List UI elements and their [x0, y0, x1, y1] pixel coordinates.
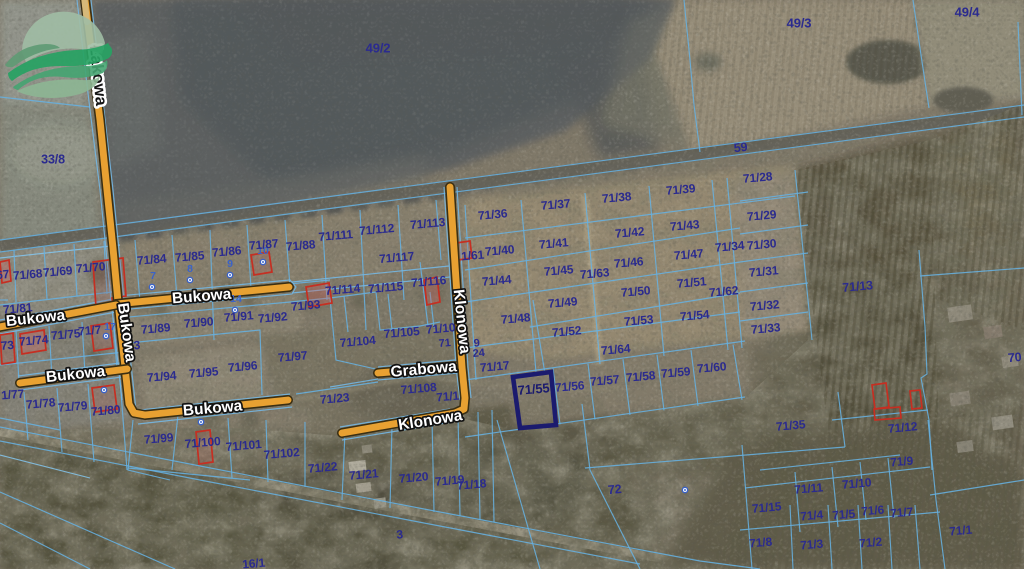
svg-text:71/64: 71/64 [600, 341, 631, 358]
svg-text:71/6: 71/6 [861, 503, 885, 519]
svg-text:71/17: 71/17 [479, 358, 510, 375]
svg-text:71/45: 71/45 [543, 262, 574, 279]
svg-text:71/4: 71/4 [800, 508, 824, 524]
svg-text:71/21: 71/21 [348, 466, 379, 483]
svg-text:71/15: 71/15 [751, 499, 782, 516]
svg-text:71/13: 71/13 [842, 278, 874, 295]
svg-text:49/4: 49/4 [955, 5, 981, 20]
svg-text:71/7: 71/7 [78, 323, 102, 339]
svg-text:71/68: 71/68 [12, 266, 43, 283]
svg-text:71/31: 71/31 [748, 263, 779, 280]
svg-text:71/95: 71/95 [188, 364, 219, 381]
svg-text:71/30: 71/30 [746, 236, 777, 253]
svg-text:71/70: 71/70 [75, 259, 106, 276]
svg-text:72: 72 [607, 482, 622, 497]
svg-text:71/5: 71/5 [832, 507, 856, 523]
svg-text:71/32: 71/32 [749, 297, 780, 314]
svg-text:71/48: 71/48 [500, 310, 531, 327]
svg-text:70: 70 [1007, 350, 1022, 365]
svg-text:71/7: 71/7 [890, 505, 914, 521]
svg-text:71/23: 71/23 [319, 390, 350, 407]
svg-text:71/53: 71/53 [623, 312, 654, 329]
svg-text:71/60: 71/60 [696, 359, 727, 376]
svg-text:71/94: 71/94 [146, 368, 177, 385]
svg-text:71/44: 71/44 [481, 272, 512, 289]
svg-text:24: 24 [472, 347, 486, 360]
svg-text:71/89: 71/89 [140, 320, 171, 337]
svg-text:71/38: 71/38 [601, 189, 632, 206]
svg-text:71/62: 71/62 [708, 283, 739, 300]
svg-text:71/29: 71/29 [746, 207, 777, 224]
svg-text:71/99: 71/99 [143, 430, 174, 447]
svg-text:71/58: 71/58 [625, 368, 656, 385]
svg-text:71/18: 71/18 [456, 476, 487, 493]
svg-text:71/33: 71/33 [750, 320, 781, 337]
svg-text:71/78: 71/78 [25, 395, 56, 412]
svg-text:71/43: 71/43 [669, 217, 700, 234]
svg-text:71/52: 71/52 [551, 323, 582, 340]
svg-text:71/10: 71/10 [425, 320, 456, 337]
svg-text:71/63: 71/63 [579, 265, 610, 282]
svg-text:71/80: 71/80 [90, 402, 121, 419]
svg-text:71/91: 71/91 [223, 308, 254, 325]
svg-text:71: 71 [438, 337, 451, 350]
svg-text:71/1: 71/1 [949, 523, 973, 539]
svg-text:71/55: 71/55 [517, 380, 550, 398]
svg-text:7: 7 [150, 270, 156, 282]
svg-text:71/87: 71/87 [248, 236, 279, 253]
svg-text:71/92: 71/92 [257, 309, 288, 326]
svg-text:1/61: 1/61 [461, 248, 485, 264]
svg-text:1/77: 1/77 [1, 387, 25, 403]
svg-text:71/22: 71/22 [307, 459, 338, 476]
svg-text:49/2: 49/2 [366, 41, 391, 56]
svg-text:71/20: 71/20 [398, 469, 429, 486]
svg-text:71/42: 71/42 [614, 224, 645, 241]
svg-text:71/12: 71/12 [887, 419, 918, 436]
svg-text:71/8: 71/8 [749, 535, 773, 551]
svg-text:71/69: 71/69 [42, 263, 73, 280]
svg-text:/73: /73 [0, 338, 15, 353]
svg-text:71/9: 71/9 [890, 454, 914, 470]
svg-text:71/93: 71/93 [290, 297, 321, 314]
svg-text:17: 17 [104, 321, 116, 333]
svg-text:71/85: 71/85 [174, 248, 205, 265]
svg-text:9: 9 [227, 258, 233, 270]
svg-text:71/37: 71/37 [540, 196, 571, 213]
svg-text:71/49: 71/49 [547, 294, 578, 311]
svg-text:71/47: 71/47 [673, 246, 704, 263]
svg-text:71/86: 71/86 [211, 243, 242, 260]
svg-text:33/8: 33/8 [41, 153, 65, 167]
svg-text:16/1: 16/1 [242, 556, 266, 569]
svg-text:71/35: 71/35 [775, 417, 806, 434]
svg-text:71/79: 71/79 [57, 398, 88, 415]
svg-text:8: 8 [187, 263, 193, 275]
svg-text:71/90: 71/90 [183, 314, 214, 331]
svg-text:59: 59 [733, 140, 748, 155]
svg-text:71/50: 71/50 [620, 283, 651, 300]
svg-text:71/10: 71/10 [841, 475, 872, 492]
svg-text:71/96: 71/96 [227, 358, 258, 375]
svg-text:71/56: 71/56 [554, 378, 585, 395]
svg-text:49/3: 49/3 [787, 16, 812, 31]
svg-text:71/88: 71/88 [285, 237, 316, 254]
svg-text:71/57: 71/57 [589, 372, 620, 389]
svg-text:71/34: 71/34 [714, 238, 745, 255]
svg-text:71/36: 71/36 [477, 206, 508, 223]
svg-text:67: 67 [0, 267, 10, 282]
svg-text:71/59: 71/59 [660, 364, 691, 381]
svg-text:71/40: 71/40 [484, 242, 515, 259]
svg-text:71/75: 71/75 [50, 326, 81, 343]
svg-text:71/84: 71/84 [136, 251, 167, 268]
svg-text:71/54: 71/54 [679, 307, 710, 324]
svg-text:71/41: 71/41 [538, 235, 569, 252]
svg-text:71/11: 71/11 [794, 480, 824, 496]
svg-text:71/51: 71/51 [676, 274, 707, 291]
svg-text:71/97: 71/97 [277, 348, 308, 365]
svg-text:71/46: 71/46 [613, 254, 644, 271]
svg-text:71/3: 71/3 [800, 537, 824, 553]
svg-text:14: 14 [230, 293, 242, 305]
svg-text:71/74: 71/74 [18, 332, 49, 349]
svg-text:71/1: 71/1 [436, 389, 460, 405]
svg-text:71/28: 71/28 [742, 169, 773, 186]
svg-text:71/39: 71/39 [665, 181, 696, 198]
svg-text:71/2: 71/2 [859, 535, 883, 551]
